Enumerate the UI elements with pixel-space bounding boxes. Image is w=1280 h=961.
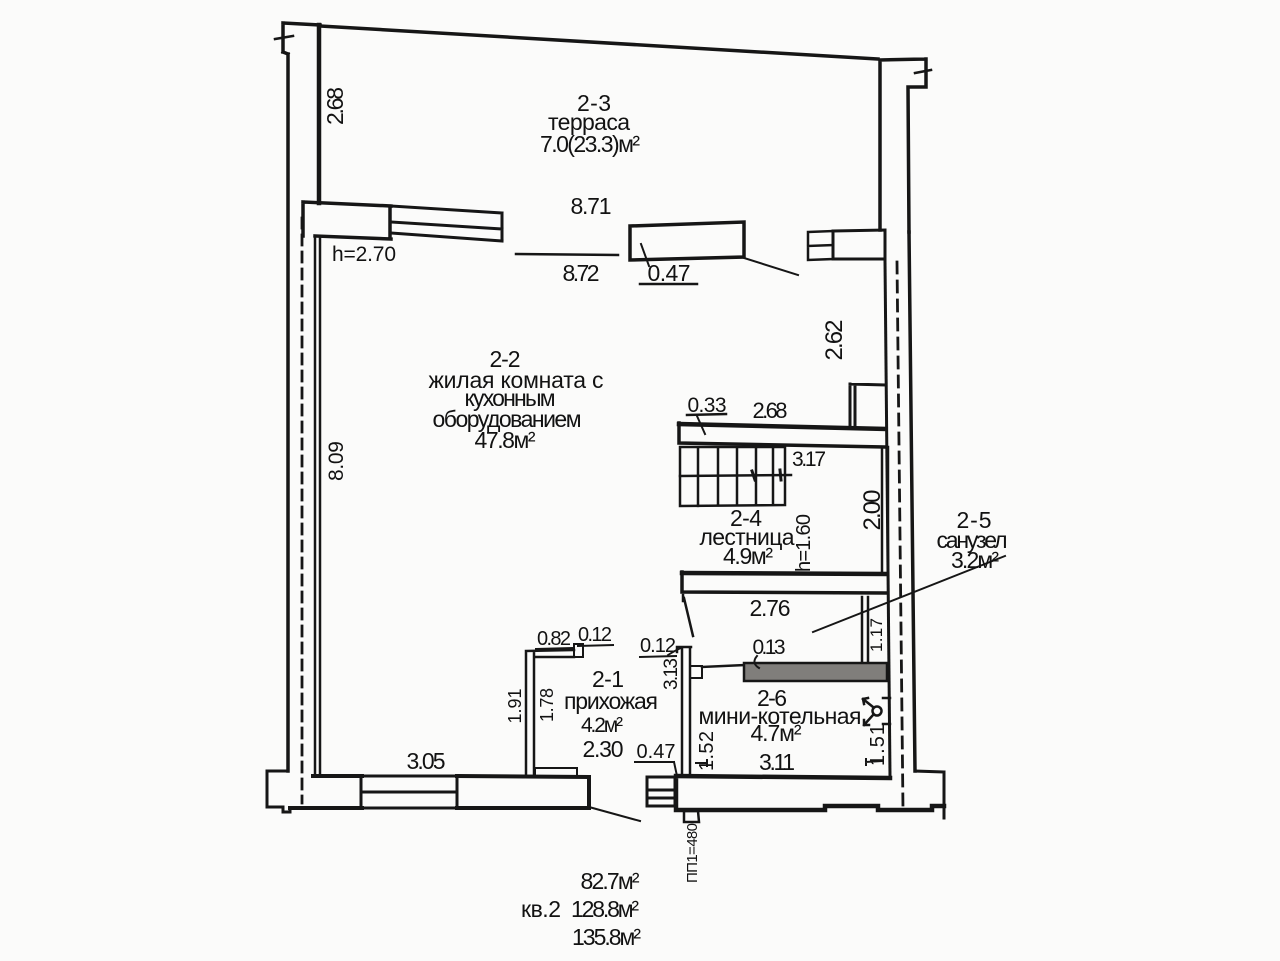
svg-text:1.91: 1.91 — [505, 689, 525, 724]
svg-text:h=1.60: h=1.60 — [793, 514, 815, 572]
svg-text:прихожая: прихожая — [564, 688, 658, 714]
svg-text:3.05: 3.05 — [407, 748, 446, 774]
svg-text:1.17: 1.17 — [867, 618, 886, 652]
svg-text:2.30: 2.30 — [583, 736, 624, 762]
svg-text:4.7м²: 4.7м² — [751, 720, 802, 746]
svg-text:8.09: 8.09 — [325, 441, 348, 481]
svg-text:8.72: 8.72 — [563, 260, 600, 286]
svg-text:2.00: 2.00 — [859, 490, 886, 531]
svg-text:3.13: 3.13 — [661, 658, 682, 690]
svg-text:2.76: 2.76 — [750, 595, 791, 621]
svg-text:0.82: 0.82 — [537, 628, 571, 650]
svg-text:2.68: 2.68 — [322, 87, 348, 125]
svg-text:4.2м²: 4.2м² — [581, 714, 623, 737]
svg-text:кв.2: кв.2 — [521, 896, 561, 922]
svg-text:82.7м²: 82.7м² — [581, 868, 640, 894]
svg-text:0.47: 0.47 — [637, 741, 676, 763]
svg-text:3.11: 3.11 — [759, 749, 795, 775]
svg-text:ПП1=480: ПП1=480 — [684, 823, 701, 883]
svg-text:8.71: 8.71 — [571, 193, 612, 219]
svg-text:7.0(23.3)м²: 7.0(23.3)м² — [540, 131, 640, 157]
svg-text:0.12: 0.12 — [578, 624, 612, 646]
svg-text:4.9м²: 4.9м² — [723, 543, 773, 569]
svg-text:1.51: 1.51 — [867, 724, 889, 766]
svg-text:2.68: 2.68 — [753, 398, 788, 423]
svg-text:2.62: 2.62 — [821, 320, 848, 361]
svg-text:3.2м²: 3.2м² — [951, 547, 999, 573]
svg-text:47.8м²: 47.8м² — [475, 427, 536, 453]
svg-text:0.47: 0.47 — [648, 260, 691, 286]
svg-text:3.17: 3.17 — [792, 448, 826, 471]
svg-text:135.8м²: 135.8м² — [572, 924, 641, 950]
svg-text:128.8м²: 128.8м² — [571, 896, 639, 922]
svg-text:h=2.70: h=2.70 — [332, 243, 396, 266]
svg-text:1.78: 1.78 — [537, 688, 557, 722]
